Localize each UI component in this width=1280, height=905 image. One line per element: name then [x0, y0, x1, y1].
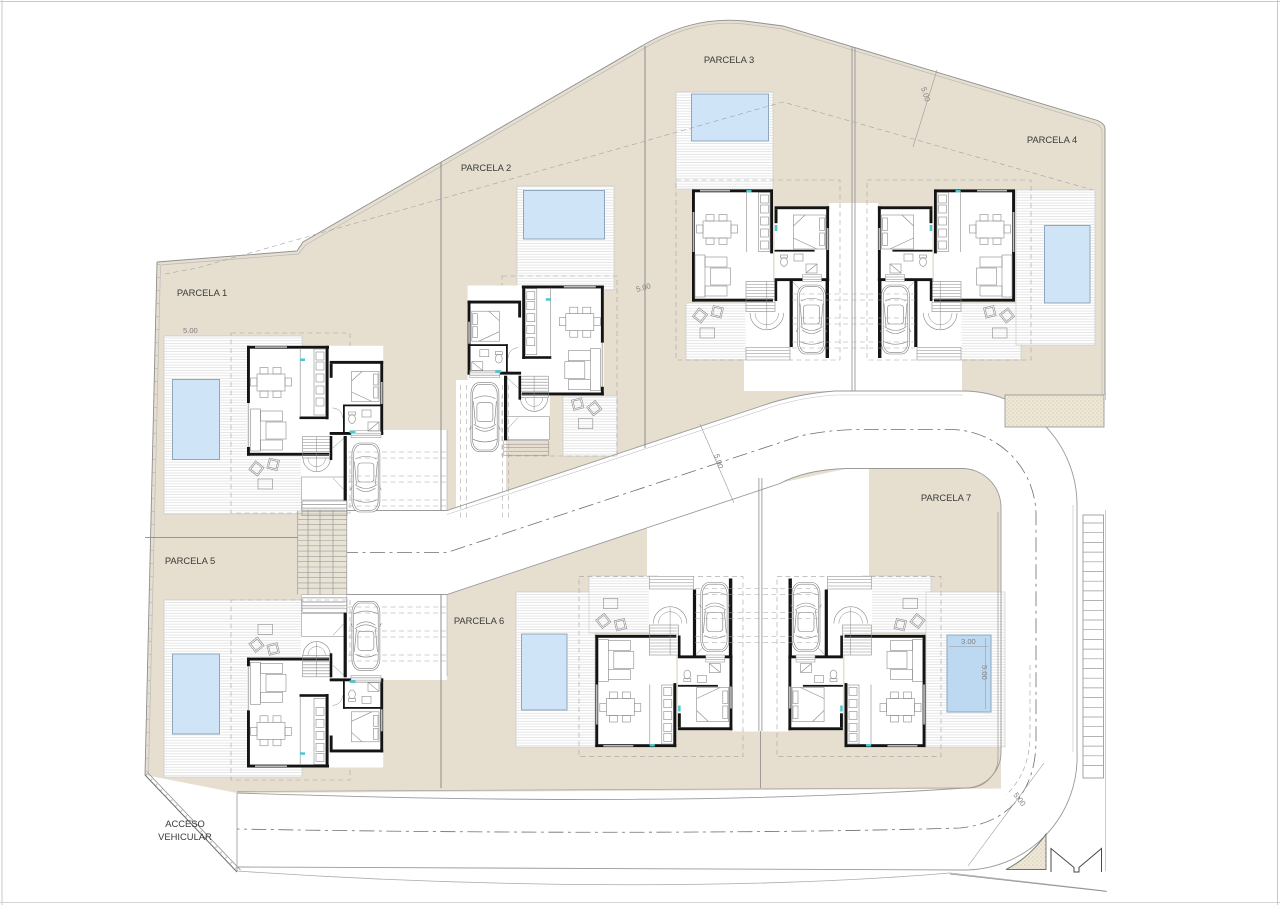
svg-text:PARCELA 3: PARCELA 3: [704, 54, 754, 65]
svg-text:PARCELA 4: PARCELA 4: [1027, 134, 1077, 145]
svg-text:5.00: 5.00: [980, 665, 989, 680]
svg-text:PARCELA 6: PARCELA 6: [454, 615, 504, 626]
svg-text:3.00: 3.00: [961, 637, 976, 646]
svg-text:PARCELA 5: PARCELA 5: [165, 555, 215, 566]
svg-text:PARCELA 1: PARCELA 1: [177, 287, 227, 298]
svg-text:PARCELA 2: PARCELA 2: [461, 162, 511, 173]
svg-text:VEHICULAR: VEHICULAR: [158, 831, 212, 842]
svg-text:5.00: 5.00: [183, 326, 198, 335]
svg-text:PARCELA 7: PARCELA 7: [921, 492, 971, 503]
svg-text:ACCESO: ACCESO: [165, 818, 205, 829]
